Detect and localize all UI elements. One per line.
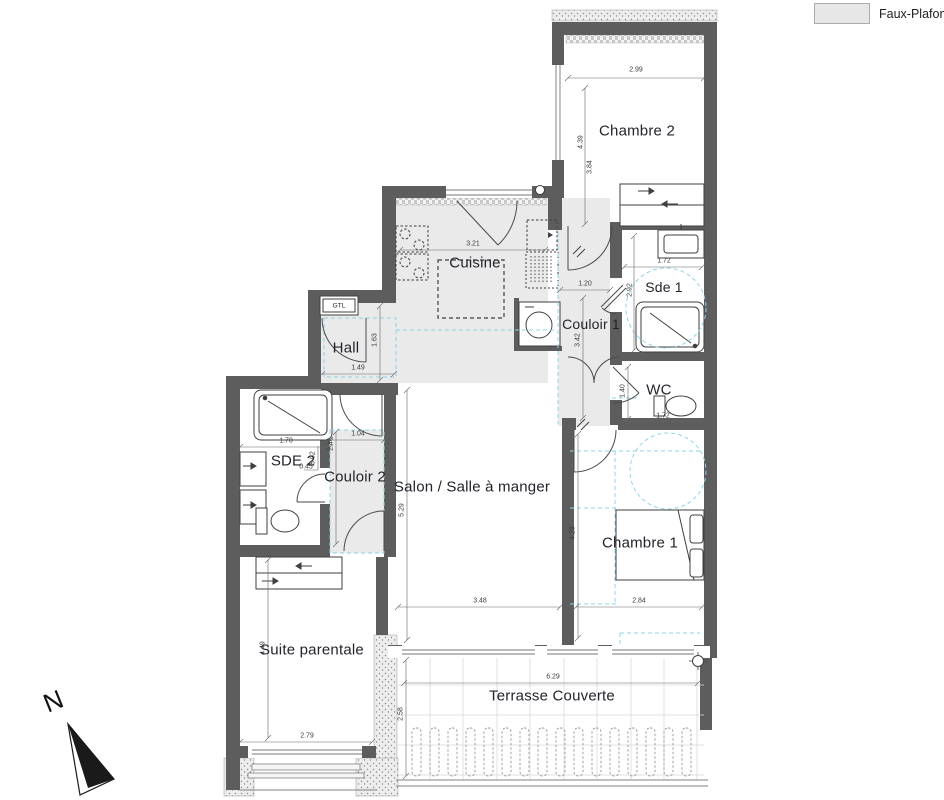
shower-sde2	[254, 390, 332, 440]
room-label-salon: Salon / Salle à manger	[394, 479, 550, 496]
room-label-chambre2: Chambre 2	[599, 123, 675, 140]
room-label-gtl: GTL	[333, 303, 346, 310]
washing-machine	[519, 302, 560, 346]
floor-plan-page: Faux-Plafond N Chambre 2 Cuisine Sde 1 C…	[0, 0, 944, 800]
terrace-slats	[412, 728, 691, 776]
dim-chambre2-height: 4.39	[578, 135, 585, 149]
dim-couloir1-width: 1.20	[578, 281, 592, 288]
wardrobe-suite	[256, 557, 342, 589]
dim-hall-height: 1.63	[372, 333, 379, 347]
faux-plafond-swatch	[814, 3, 870, 24]
dim-chambre1-width: 2.84	[632, 598, 646, 605]
dim-couloir2-width: 1.04	[351, 431, 365, 438]
dim-wc-width: 1.72	[656, 413, 670, 420]
dim-chambre2-height-2: 3.84	[587, 160, 594, 174]
floor-plan-drawing	[0, 0, 944, 800]
dim-couloir1-length: 3.42	[575, 333, 582, 347]
sde2-door	[297, 474, 325, 502]
shower-sde1	[636, 302, 704, 352]
terrace-edges	[240, 764, 708, 790]
dim-chambre2-width: 2.99	[629, 67, 643, 74]
insulation-strips	[396, 35, 704, 205]
column-symbol	[536, 186, 545, 195]
dim-terrasse-width: 6.29	[546, 674, 560, 681]
room-label-sde1: Sde 1	[645, 279, 683, 295]
room-label-chambre1: Chambre 1	[602, 535, 678, 552]
dim-salon-height: 5.29	[399, 503, 406, 517]
dim-sde2-width: 1.70	[279, 438, 293, 445]
turning-circle-chambre1	[630, 433, 706, 509]
dim-salon-width: 3.48	[473, 598, 487, 605]
room-label-suite-parentale: Suite parentale	[260, 642, 364, 659]
wardrobe-chambre2	[620, 184, 704, 226]
dim-sde1-width: 1.72	[657, 258, 671, 265]
column-symbol	[693, 656, 704, 667]
dim-couloir2-height: 2.46	[328, 437, 335, 451]
dim-suite-width: 2.79	[300, 733, 314, 740]
dim-couloir2-offset: 0.45	[299, 464, 313, 471]
dim-sde1-height: 2.92	[627, 283, 634, 297]
dim-suite-height: 4.49	[260, 641, 267, 655]
room-label-terrasse: Terrasse Couverte	[489, 688, 615, 705]
faux-plafond-label: Faux-Plafond	[879, 7, 944, 21]
dim-cuisine-width: 3.21	[466, 241, 480, 248]
dim-terrasse-height: 2.58	[398, 707, 405, 721]
dim-wc-height: 1.40	[620, 384, 627, 398]
room-label-couloir1: Couloir 1	[562, 316, 620, 332]
dim-chambre1-height: 4.29	[570, 526, 577, 540]
toilet-sde2	[256, 508, 299, 534]
room-label-cuisine: Cuisine	[449, 255, 500, 272]
legend: Faux-Plafond	[814, 3, 944, 24]
room-label-hall: Hall	[333, 340, 360, 357]
north-arrow-icon	[68, 724, 114, 795]
room-label-wc: WC	[646, 382, 671, 399]
room-label-couloir2: Couloir 2	[324, 469, 386, 486]
dim-hall-width: 1.49	[351, 365, 365, 372]
